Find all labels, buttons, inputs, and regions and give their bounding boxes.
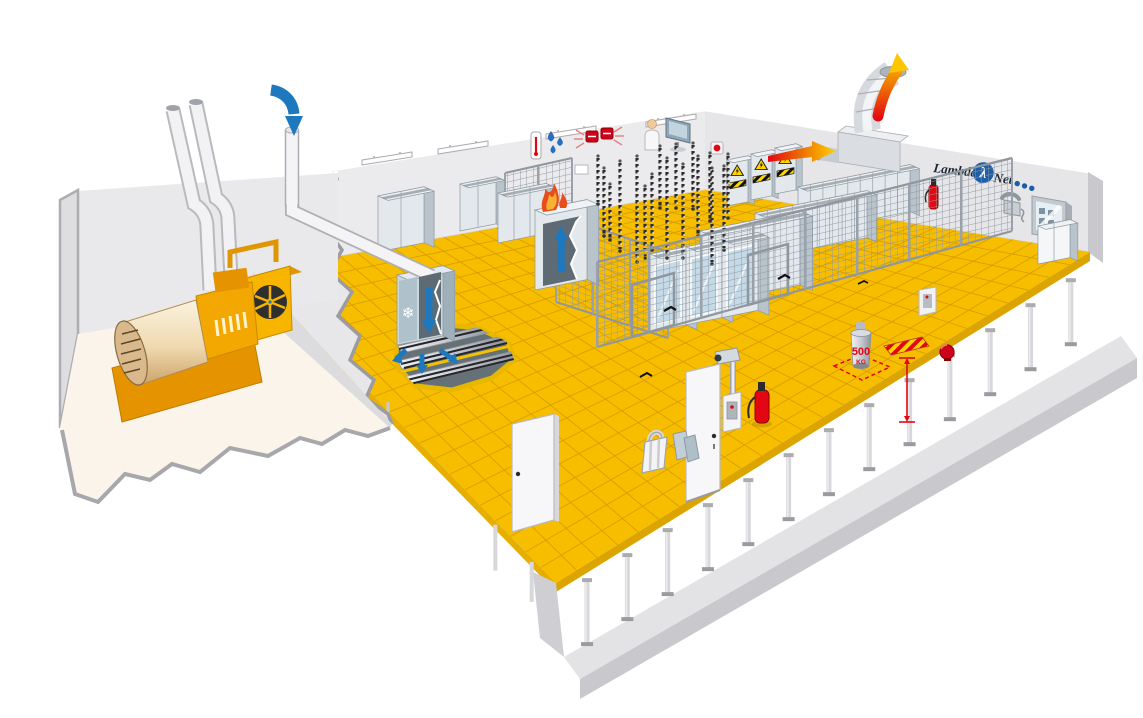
chain-anchor: [696, 154, 699, 157]
pedestal-foot: [904, 442, 916, 446]
pedestal-cap: [784, 453, 794, 457]
weight-unit: KG: [856, 359, 866, 366]
pedestal-cap: [864, 403, 874, 407]
exhaust-arrowhead: [889, 53, 909, 73]
chain-anchor: [681, 162, 684, 165]
door-handle-icon: [712, 434, 716, 438]
intake-arrow-icon: [271, 90, 294, 114]
pedestal-cap: [1026, 303, 1036, 307]
chain-end: [691, 207, 695, 211]
chain-end: [726, 216, 730, 220]
wall-junction-box: [575, 165, 588, 174]
chain-anchor: [650, 172, 653, 175]
pedestal-foot: [1065, 342, 1077, 346]
airflow-up-arrow-icon: [561, 238, 562, 272]
chain-end: [618, 249, 622, 253]
pedestal-foot: [863, 467, 875, 471]
crac-unit-side: [443, 266, 455, 341]
chain-anchor: [674, 142, 677, 145]
pedestal-foot: [662, 592, 674, 596]
weight-value: 500: [852, 346, 870, 358]
pedestal-foot: [783, 517, 795, 521]
datacenter-illustration: Lambda λ Net: [0, 0, 1143, 718]
camera-lens-icon: [715, 355, 722, 362]
access-panel: [919, 287, 936, 316]
pedestal-cap: [985, 328, 995, 332]
pedestal-foot: [1025, 367, 1037, 371]
hall-door: [686, 364, 720, 502]
pedestal-foot: [581, 642, 593, 646]
emergency-button-icon: [711, 142, 723, 154]
chain-anchor: [658, 144, 661, 147]
server-rack-side: [424, 187, 434, 247]
chain-anchor: [665, 156, 668, 159]
chain-end: [708, 219, 712, 223]
chain-anchor: [635, 154, 638, 157]
hot-air-exhaust: [768, 53, 909, 172]
pedestal-cap: [663, 528, 673, 532]
snowflake-icon: ❄: [402, 305, 415, 322]
pedestal-foot: [621, 617, 633, 621]
chain-anchor: [643, 184, 646, 187]
chain-anchor: [618, 159, 621, 162]
pedestal-cap: [582, 578, 592, 582]
pedestal-cap: [622, 553, 632, 557]
pedestal-cap: [824, 428, 834, 432]
door-handle-icon: [516, 472, 520, 476]
chain-end: [596, 202, 600, 206]
pedestal-cap: [1066, 278, 1076, 282]
pedestal-foot: [702, 567, 714, 571]
chain-end: [674, 206, 678, 210]
pedestal-cap: [743, 478, 753, 482]
pedestal-cap: [703, 503, 713, 507]
chain-anchor: [726, 152, 729, 155]
access-card-reader: [723, 392, 741, 432]
chain-anchor: [722, 164, 725, 167]
thermometer-icon: [531, 132, 541, 159]
chain-end: [658, 206, 662, 210]
pedestal-foot: [984, 392, 996, 396]
pedestal-foot: [823, 492, 835, 496]
intake-pipe-vertical: [286, 130, 299, 206]
chain-anchor: [608, 182, 611, 185]
chain-anchor: [708, 151, 711, 154]
chain-anchor: [691, 141, 694, 144]
chain-anchor: [596, 154, 599, 157]
pedestal-foot: [742, 542, 754, 546]
pedestal-foot: [944, 417, 956, 421]
wall-end-cap: [1088, 172, 1103, 263]
chain-end: [602, 234, 606, 238]
wall-cabinet-side: [1070, 220, 1078, 261]
pedestal-cap: [905, 378, 915, 382]
entry-door: [512, 414, 559, 532]
chain-end: [608, 238, 612, 242]
chain-anchor: [602, 166, 605, 169]
